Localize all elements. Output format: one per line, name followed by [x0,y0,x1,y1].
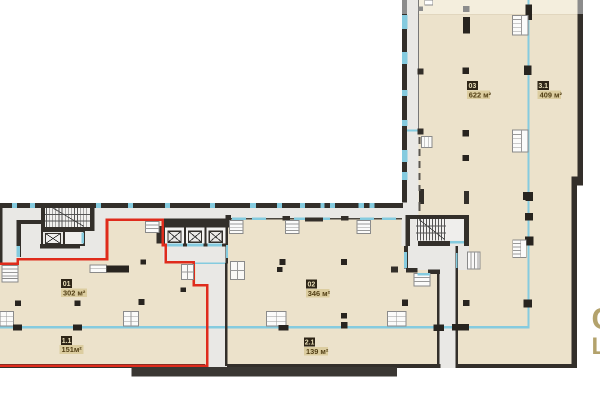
svg-text:L: L [592,333,600,360]
svg-text:346 м²: 346 м² [308,289,331,298]
svg-text:2.1: 2.1 [305,340,315,347]
svg-text:409 м²: 409 м² [540,90,563,99]
svg-text:01: 01 [63,281,71,288]
svg-text:151м²: 151м² [62,345,83,354]
svg-text:02: 02 [308,282,316,289]
svg-text:03: 03 [469,83,477,90]
svg-text:139 м²: 139 м² [306,347,329,356]
svg-text:C: C [592,301,600,336]
svg-text:3.1: 3.1 [538,83,548,90]
svg-text:302 м²: 302 м² [63,288,86,297]
svg-text:1.1: 1.1 [62,338,72,345]
svg-text:622 м²: 622 м² [469,90,492,99]
